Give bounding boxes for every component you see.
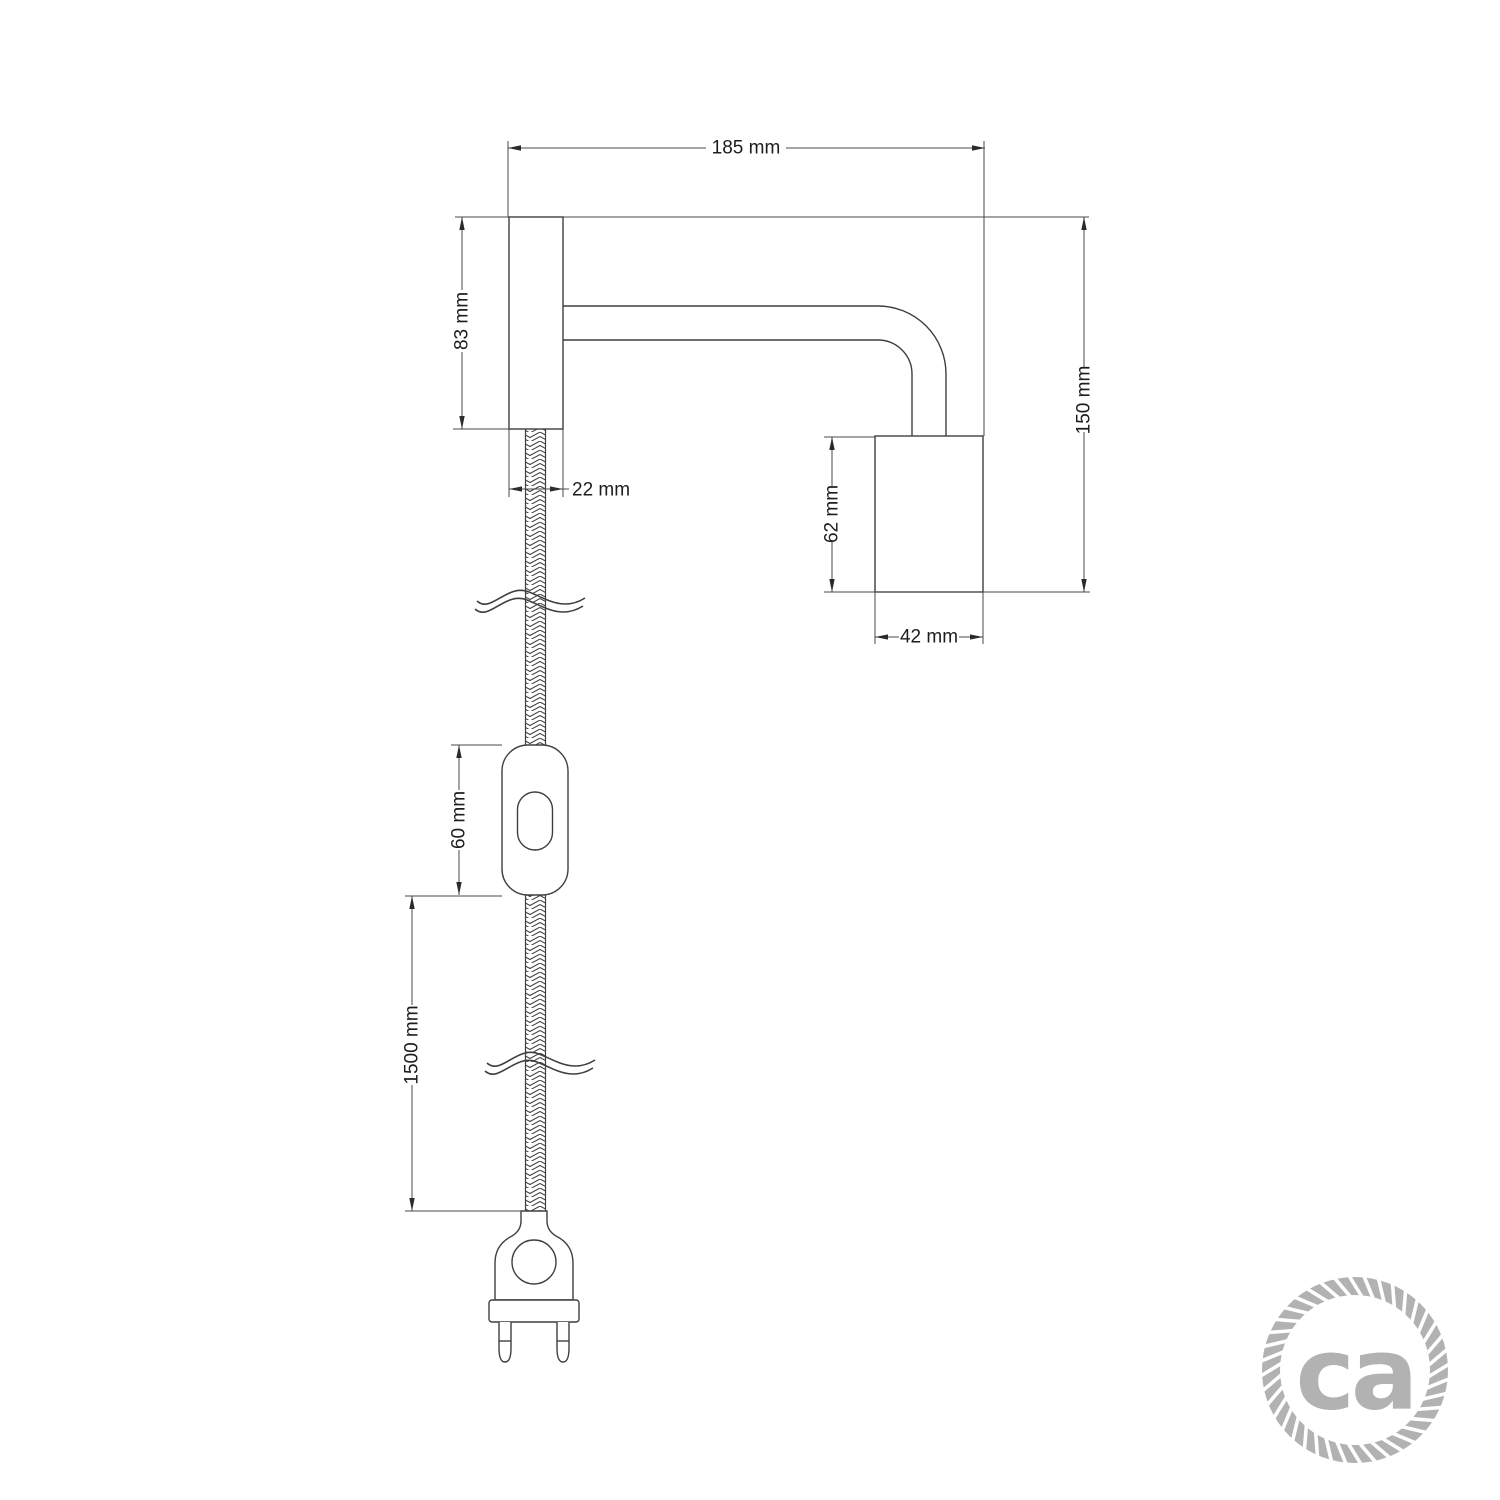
dimension-label-socket-height: 62 mm — [822, 485, 843, 543]
dimension-label-plate-depth: 22 mm — [572, 480, 630, 501]
dimension-socket-width: 42 mm — [875, 592, 983, 648]
plug-screw — [512, 1240, 556, 1284]
arm-inner-edge — [563, 340, 912, 436]
technical-drawing-canvas: 185 mm 83 mm 22 mm 150 mm 62 mm 42 mm — [0, 0, 1500, 1500]
dimension-label-cable-length: 1500 mm — [402, 1005, 423, 1084]
dimension-label-socket-width: 42 mm — [900, 627, 958, 648]
logo-text: ca — [1296, 1316, 1415, 1433]
plug-pins — [499, 1322, 569, 1362]
dimension-label-overall-height: 150 mm — [1074, 366, 1095, 435]
lamp-socket — [875, 436, 983, 592]
dimension-plate-height: 83 mm — [452, 217, 510, 429]
dimension-cable-length: 1500 mm — [402, 896, 523, 1211]
dimension-socket-height: 62 mm — [822, 437, 876, 592]
power-plug — [489, 1211, 579, 1362]
brand-logo: ca — [1259, 1274, 1451, 1466]
switch-rocker — [518, 792, 553, 850]
plug-base-flange — [489, 1300, 579, 1322]
wall-mount-plate — [509, 217, 563, 429]
wall-lamp-fixture — [455, 217, 1089, 1211]
dimension-arm-length: 185 mm — [508, 138, 985, 437]
dimension-switch-length: 60 mm — [405, 745, 502, 896]
arm-outer-edge — [563, 306, 946, 436]
dimension-label-arm-length: 185 mm — [712, 138, 781, 159]
drawing-sheet: 185 mm 83 mm 22 mm 150 mm 62 mm 42 mm — [0, 0, 1500, 1500]
dimension-label-switch-length: 60 mm — [449, 791, 470, 849]
dimension-label-plate-height: 83 mm — [452, 292, 473, 350]
inline-switch — [502, 745, 568, 895]
